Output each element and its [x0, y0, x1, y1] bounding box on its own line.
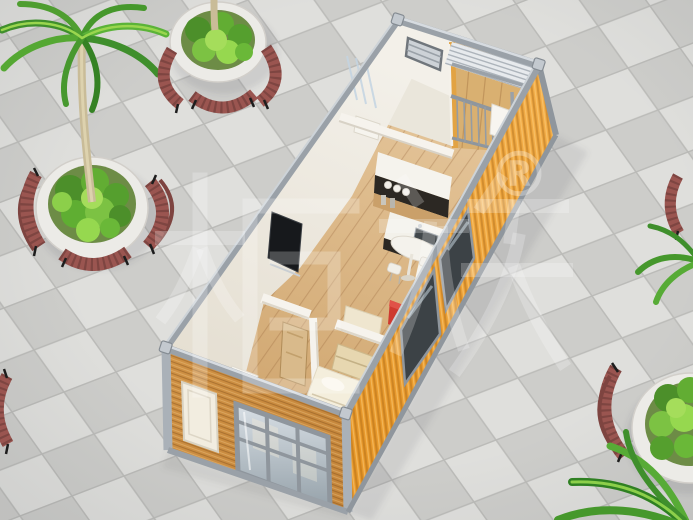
palm-trunk	[214, 0, 215, 30]
scene-canvas: 柜族 ®	[0, 0, 693, 520]
corner-post	[346, 414, 348, 512]
registered-mark: ®	[488, 138, 550, 211]
render-image: 柜族 ®	[0, 0, 693, 520]
corner-post	[166, 348, 168, 450]
watermark: 柜族 ®	[162, 138, 580, 398]
